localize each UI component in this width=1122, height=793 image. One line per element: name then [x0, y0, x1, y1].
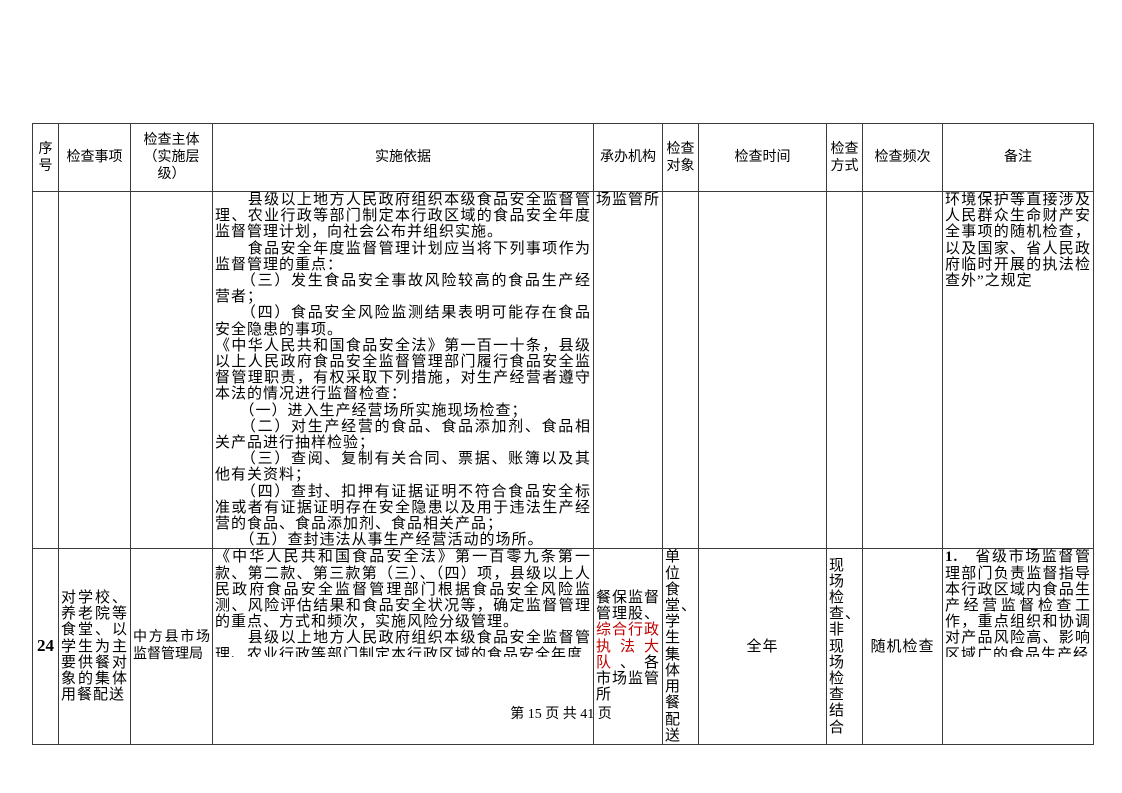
column-header-time-label: 检查时间 [735, 150, 791, 165]
column-header-target: 检查对象 [663, 124, 699, 192]
basis-paragraph: （四）食品安全风险监测结果表明可能存在食品安全隐患的事项。 [215, 305, 591, 337]
basis-paragraph: 《中华人民共和国食品安全法》第一百一十条，县级以上人民政府食品安全监督管理部门履… [215, 338, 591, 403]
basis-paragraph: 《中华人民共和国食品安全法》第一百零九条第一款、第二款、第三款第（三）、（四）项… [215, 549, 591, 630]
cell-time-empty [699, 192, 827, 549]
table-header-row: 序号 检查事项 检查主体（实施层级） 实施依据 承办机构 检查对象 检查时间 检… [33, 124, 1094, 192]
document-page: 序号 检查事项 检查主体（实施层级） 实施依据 承办机构 检查对象 检查时间 检… [0, 0, 1122, 793]
agency-text: 场监管所 [596, 192, 660, 208]
inspection-item-text: 对学校、养老院等食堂、以学生为主要供餐对象的集体用餐配送 [61, 590, 128, 703]
basis-clip-region: 《中华人民共和国食品安全法》第一百零九条第一款、第二款、第三款第（三）、（四）项… [215, 549, 591, 657]
cell-target-empty [663, 192, 699, 549]
column-header-frequency: 检查频次 [863, 124, 943, 192]
cell-agency: 场监管所 [594, 192, 663, 549]
cell-method-empty [827, 192, 863, 549]
inspection-subject-text: 中方县市场监督管理局 [133, 630, 210, 662]
table-row-continuation: 县级以上地方人民政府组织本级食品安全监督管理、农业行政等部门制定本行政区域的食品… [33, 192, 1094, 549]
column-header-frequency-label: 检查频次 [875, 150, 931, 165]
column-header-method-label: 检查方式 [831, 142, 859, 174]
basis-paragraph: （三）发生食品安全事故风险较高的食品生产经营者； [215, 273, 591, 305]
cell-frequency-empty [863, 192, 943, 549]
column-header-seq: 序号 [33, 124, 59, 192]
column-header-item-label: 检查事项 [67, 150, 123, 165]
column-header-basis: 实施依据 [213, 124, 594, 192]
page-footer: 第 15 页 共 41 页 [0, 703, 1122, 723]
inspection-time-text: 全年 [746, 639, 778, 655]
cell-seq-empty [33, 192, 59, 549]
column-header-seq-label: 序号 [39, 142, 53, 174]
agency-part: 餐保监督管理股、 [596, 590, 660, 622]
cell-item-empty [59, 192, 131, 549]
inspection-plan-table: 序号 检查事项 检查主体（实施层级） 实施依据 承办机构 检查对象 检查时间 检… [32, 123, 1094, 745]
basis-paragraph: 县级以上地方人民政府组织本级食品安全监督管理、农业行政等部门制定本行政区域的食品… [215, 192, 591, 241]
remark-text: 省级市场监督管理部门负责监督指导本行政区域内食品生产经营监督检查工作，重点组织和… [945, 549, 1091, 657]
remark-clip-region: 1. 省级市场监督管理部门负责监督指导本行政区域内食品生产经营监督检查工作，重点… [945, 549, 1091, 657]
column-header-target-label: 检查对象 [667, 142, 695, 174]
column-header-remark: 备注 [943, 124, 1094, 192]
inspection-frequency-text: 随机检查 [870, 639, 934, 655]
basis-paragraph: （二）对生产经营的食品、食品添加剂、食品相关产品进行抽样检验； [215, 419, 591, 451]
basis-paragraph: 食品安全年度监督管理计划应当将下列事项作为监督管理的重点： [215, 241, 591, 273]
cell-basis: 县级以上地方人民政府组织本级食品安全监督管理、农业行政等部门制定本行政区域的食品… [213, 192, 594, 549]
cell-remark: 环境保护等直接涉及人民群众生命财产安全事项的随机检查，以及国家、省人民政府临时开… [943, 192, 1094, 549]
column-header-agency-label: 承办机构 [600, 150, 656, 165]
basis-paragraph: （一）进入生产经营场所实施现场检查； [215, 403, 591, 419]
column-header-item: 检查事项 [59, 124, 131, 192]
column-header-method: 检查方式 [827, 124, 863, 192]
cell-subject-empty [131, 192, 213, 549]
row-seq-number: 24 [37, 636, 54, 655]
column-header-remark-label: 备注 [1004, 150, 1032, 165]
agency-text: 餐保监督管理股、综合行政执法大队、各市场监管所 [596, 590, 660, 703]
basis-paragraph: 县级以上地方人民政府组织本级食品安全监督管理、农业行政等部门制定本行政区域的食品… [215, 630, 591, 657]
remark-text: 环境保护等直接涉及人民群众生命财产安全事项的随机检查，以及国家、省人民政府临时开… [945, 192, 1091, 289]
column-header-time: 检查时间 [699, 124, 827, 192]
column-header-subject-label: 检查主体（实施层级） [143, 132, 201, 183]
basis-paragraph: （五）查封违法从事生产经营活动的场所。 [215, 532, 591, 548]
column-header-basis-label: 实施依据 [375, 150, 431, 165]
column-header-agency: 承办机构 [594, 124, 663, 192]
remark-number: 1. [945, 549, 958, 565]
column-header-subject: 检查主体（实施层级） [131, 124, 213, 192]
basis-paragraph: （三）查阅、复制有关合同、票据、账簿以及其他有关资料； [215, 451, 591, 483]
basis-paragraph: （四）查封、扣押有证据证明不符合食品安全标准或者有证据证明存在安全隐患以及用于违… [215, 484, 591, 533]
